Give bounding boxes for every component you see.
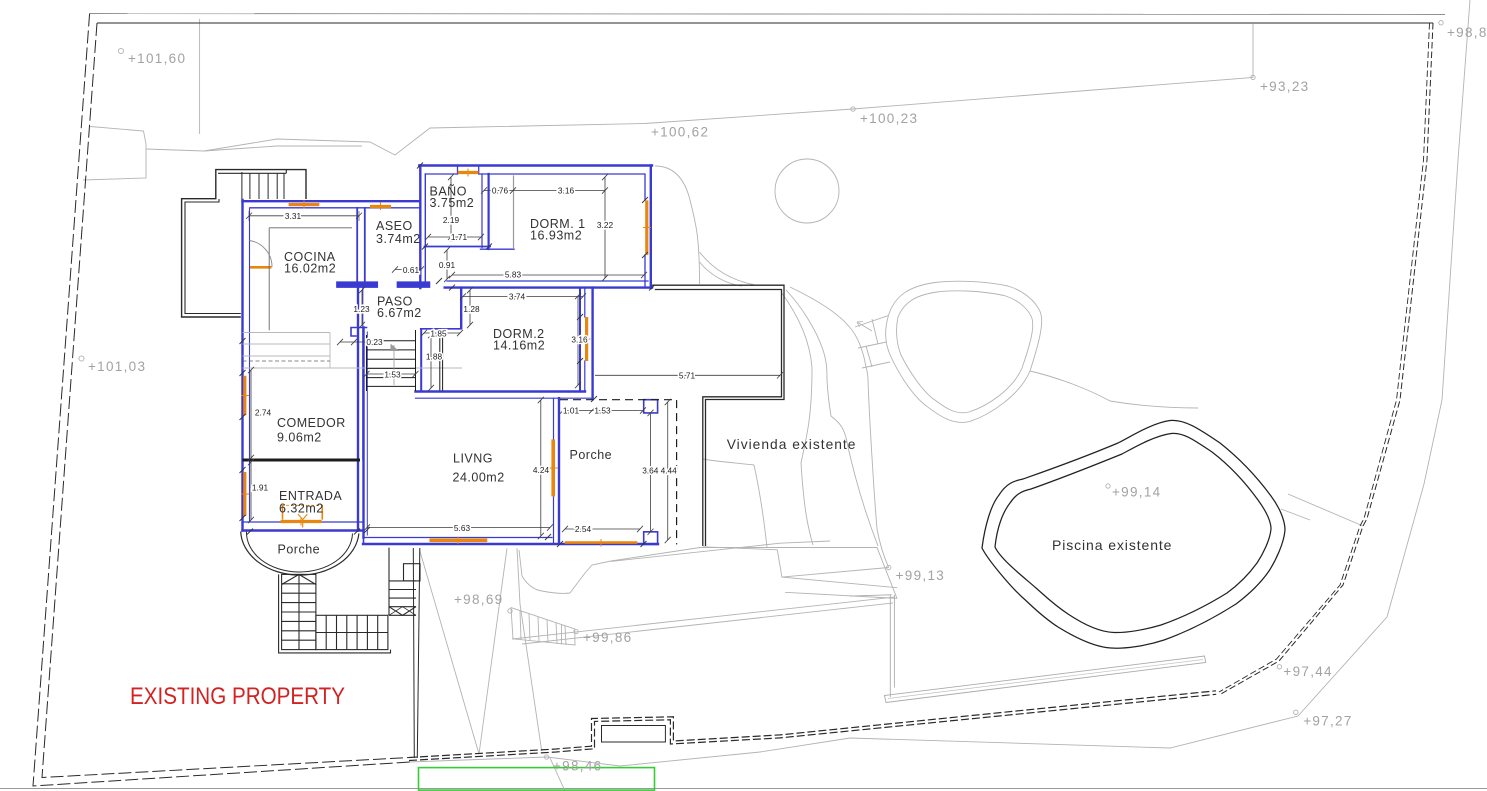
svg-text:16.93m2: 16.93m2	[530, 229, 582, 243]
svg-text:9.06m2: 9.06m2	[277, 431, 322, 445]
svg-text:+99,13: +99,13	[896, 568, 945, 583]
svg-text:ASEO: ASEO	[376, 219, 413, 233]
svg-text:+101,60: +101,60	[128, 51, 186, 66]
svg-text:COMEDOR: COMEDOR	[277, 416, 346, 430]
svg-text:2.54: 2.54	[575, 524, 592, 534]
svg-text:+99,14: +99,14	[1112, 485, 1161, 500]
svg-text:1.88: 1.88	[426, 352, 443, 362]
svg-text:1.91: 1.91	[252, 483, 269, 493]
svg-text:2.74: 2.74	[255, 408, 272, 418]
svg-text:1.53: 1.53	[384, 369, 401, 379]
svg-text:3.74m2: 3.74m2	[376, 232, 421, 246]
svg-text:3.16: 3.16	[571, 335, 588, 345]
svg-text:EXISTING PROPERTY: EXISTING PROPERTY	[130, 683, 345, 710]
svg-text:+98,69: +98,69	[454, 592, 503, 607]
svg-text:6.67m2: 6.67m2	[377, 306, 422, 320]
svg-text:+98,46: +98,46	[553, 759, 602, 774]
svg-text:1.71: 1.71	[451, 232, 468, 242]
svg-text:+100,23: +100,23	[860, 111, 918, 126]
svg-text:3.22: 3.22	[597, 220, 614, 230]
svg-text:+100,62: +100,62	[651, 125, 709, 140]
svg-text:5.63: 5.63	[454, 523, 471, 533]
svg-text:Porche: Porche	[570, 448, 613, 462]
svg-text:16.02m2: 16.02m2	[284, 262, 336, 276]
svg-text:+93,23: +93,23	[1260, 79, 1309, 94]
svg-text:+97,27: +97,27	[1303, 714, 1352, 729]
svg-text:0.91: 0.91	[439, 260, 456, 270]
svg-text:Piscina existente: Piscina existente	[1052, 537, 1172, 553]
svg-text:5.71: 5.71	[679, 370, 696, 380]
svg-text:0.23: 0.23	[366, 337, 383, 347]
svg-text:Porche: Porche	[278, 543, 321, 557]
svg-text:3.16: 3.16	[558, 185, 575, 195]
svg-text:1.53: 1.53	[594, 406, 611, 416]
svg-text:14.16m2: 14.16m2	[493, 339, 545, 353]
svg-text:1.85: 1.85	[430, 329, 447, 339]
svg-text:4.24: 4.24	[533, 465, 550, 475]
svg-text:Vivienda existente: Vivienda existente	[727, 437, 857, 452]
svg-text:+97,44: +97,44	[1283, 664, 1332, 679]
svg-text:+101,03: +101,03	[88, 359, 146, 374]
svg-text:3.64 4.44: 3.64 4.44	[642, 466, 677, 476]
svg-text:1.23: 1.23	[353, 304, 370, 314]
svg-text:2.19: 2.19	[443, 215, 460, 225]
svg-text:6.32m2: 6.32m2	[279, 502, 324, 516]
svg-text:1.01: 1.01	[563, 406, 580, 416]
svg-text:+98,81: +98,81	[1447, 25, 1487, 40]
svg-text:24.00m2: 24.00m2	[453, 471, 505, 485]
svg-text:5.83: 5.83	[505, 270, 522, 280]
svg-text:LIVNG: LIVNG	[453, 452, 493, 466]
svg-text:3.31: 3.31	[285, 211, 302, 221]
svg-text:0.76: 0.76	[492, 185, 509, 195]
svg-text:0.61: 0.61	[403, 265, 420, 275]
svg-text:3.75m2: 3.75m2	[430, 196, 475, 210]
svg-text:1.28: 1.28	[463, 304, 480, 314]
svg-text:3.74: 3.74	[509, 292, 526, 302]
svg-text:+99,86: +99,86	[583, 630, 632, 645]
